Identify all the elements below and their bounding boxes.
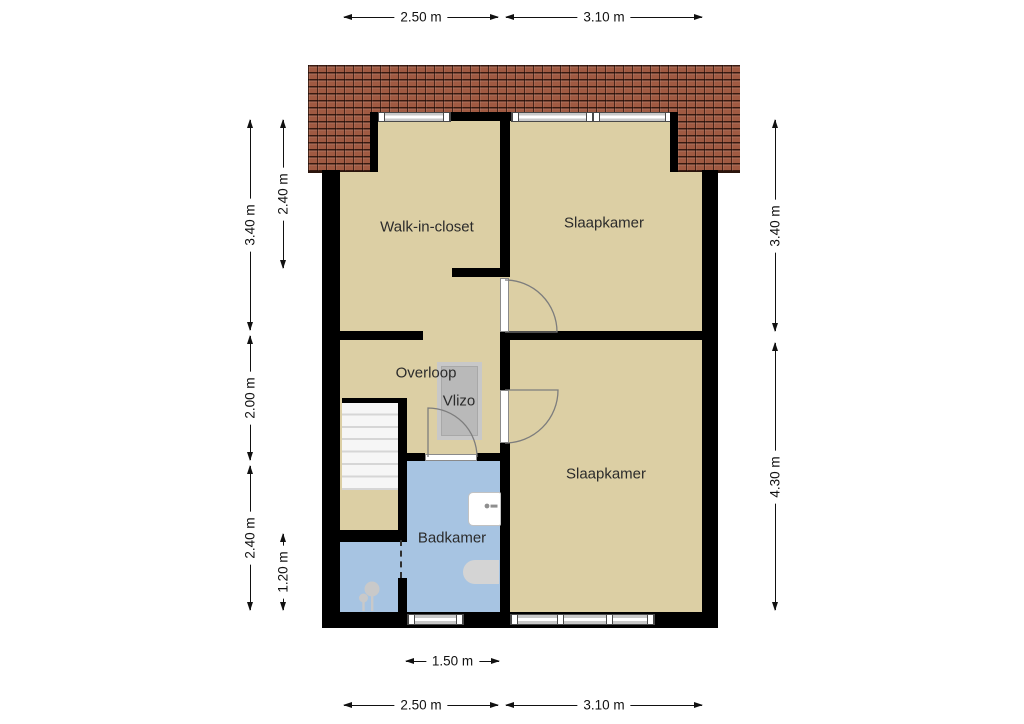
dim-label: 2.50 m	[394, 698, 447, 713]
dim-label: 4.30 m	[768, 450, 783, 503]
window-mullion	[606, 615, 613, 624]
dim-label: 3.10 m	[577, 10, 630, 25]
label-walk-in-closet: Walk-in-closet	[380, 219, 474, 236]
dim-label: 2.40 m	[276, 167, 291, 220]
dim-label: 1.50 m	[426, 654, 479, 669]
window-bedroom-bottom	[510, 614, 655, 625]
dim-label: 1.20 m	[276, 545, 291, 598]
label-attic-hatch: Vlizo	[443, 393, 476, 410]
window-cap	[647, 615, 654, 624]
label-bedroom-top: Slaapkamer	[564, 215, 644, 232]
floor-plan: Walk-in-closet Slaapkamer Overloop Vlizo…	[0, 0, 1024, 724]
wall-divider-lower	[500, 443, 510, 612]
floor-shower-area	[338, 542, 407, 612]
label-bathroom: Badkamer	[418, 530, 486, 547]
wall-shower-top	[337, 530, 407, 542]
door-bedroom-top	[500, 278, 509, 332]
dim-top-right: 3.10 m	[505, 9, 703, 25]
dim-label: 3.10 m	[577, 698, 630, 713]
window-cap	[512, 113, 519, 121]
wall-divider-upper	[500, 112, 510, 269]
wall-shower-stub	[398, 578, 407, 612]
window-mullion	[586, 113, 593, 121]
window-bathroom	[407, 614, 464, 625]
dim-left-200: 2.00 m	[242, 335, 258, 461]
dim-bottom-left: 2.50 m	[343, 697, 499, 713]
door-bathroom	[425, 454, 477, 461]
sink	[468, 492, 501, 526]
wall-right-outer	[702, 170, 718, 628]
door-bedroom-bottom	[500, 390, 509, 443]
dim-label: 2.40 m	[243, 511, 258, 564]
wall-landing-left	[338, 331, 423, 340]
dim-left-340: 3.40 m	[242, 119, 258, 331]
dim-label: 3.40 m	[768, 199, 783, 252]
dim-bottom-right: 3.10 m	[505, 697, 703, 713]
dim-right-430: 4.30 m	[767, 342, 783, 611]
wall-stairs-side	[398, 403, 407, 530]
window-mullion	[557, 615, 564, 624]
wall-bathroom-top-right	[477, 453, 510, 461]
dim-bottom-bathroom: 1.50 m	[405, 653, 500, 669]
window-mullion	[593, 113, 600, 121]
dim-left-inner-120: 1.20 m	[275, 533, 291, 611]
window-cap	[408, 615, 415, 624]
dim-top-left: 2.50 m	[343, 9, 499, 25]
floor-walk-in-closet-upper	[377, 121, 500, 172]
label-bedroom-bottom: Slaapkamer	[566, 466, 646, 483]
dim-label: 2.00 m	[243, 371, 258, 424]
dim-label: 2.50 m	[394, 10, 447, 25]
wall-divider-mid	[500, 340, 510, 390]
window-cap	[378, 113, 385, 121]
staircase	[342, 403, 398, 490]
bathtub	[463, 560, 499, 584]
floor-bedroom-top-upper	[510, 121, 670, 172]
dim-left-240: 2.40 m	[242, 465, 258, 611]
wall-closet-stub	[452, 268, 510, 277]
wall-jog-right	[670, 112, 678, 172]
dim-right-340: 3.40 m	[767, 119, 783, 332]
window-bedroom-top	[511, 112, 673, 122]
shower-screen-dashed-line	[400, 540, 402, 578]
wall-jog-left	[370, 112, 378, 172]
dim-left-inner-240: 2.40 m	[275, 119, 291, 269]
window-walk-in-closet	[377, 112, 451, 122]
wall-left-outer	[322, 170, 340, 628]
wall-bedrooms-divider	[500, 331, 702, 340]
label-landing: Overloop	[396, 365, 457, 382]
window-cap	[443, 113, 450, 121]
window-cap	[456, 615, 463, 624]
wall-bathroom-top-left	[398, 453, 425, 461]
window-cap	[511, 615, 518, 624]
dim-label: 3.40 m	[243, 198, 258, 251]
